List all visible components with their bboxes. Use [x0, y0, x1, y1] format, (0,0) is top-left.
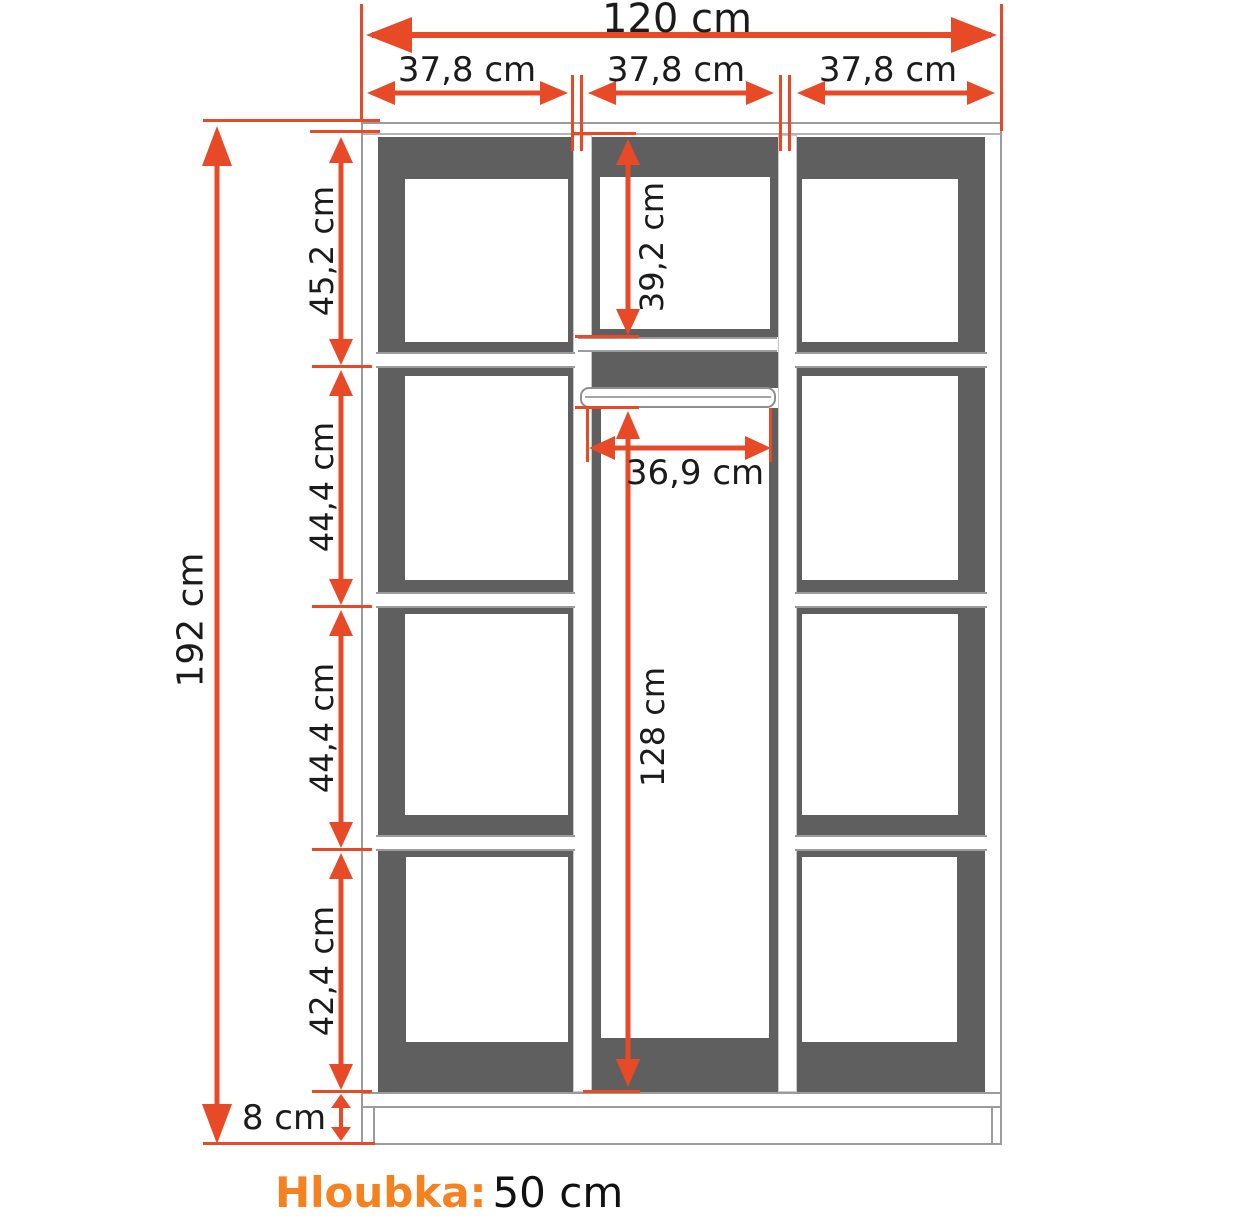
depth-label: Hloubka:: [275, 1168, 486, 1217]
clothes-rail-highlight-line: [585, 396, 771, 398]
right-compartment-2: [797, 368, 985, 592]
dim-label-plinth: 8 cm: [242, 1098, 326, 1138]
left-shelf-3: [376, 835, 575, 851]
right-shelf-1: [795, 352, 987, 368]
right-compartment-4: [797, 851, 985, 1092]
dim-label-section-left: 37,8 cm: [398, 50, 536, 90]
depth-caption: Hloubka: 50 cm: [275, 1168, 623, 1217]
left-shelf-1: [376, 352, 575, 368]
ext-line: [779, 75, 782, 151]
left-compartment-1: [378, 137, 573, 352]
ext-line: [203, 119, 380, 122]
ext-line: [360, 4, 363, 122]
plinth: [373, 1106, 993, 1145]
dim-label-total-height: 192 cm: [171, 552, 212, 687]
right-shelf-2: [795, 592, 987, 608]
ext-line: [575, 406, 639, 409]
cabinet-top-inner-line: [363, 133, 1000, 135]
ext-line: [572, 132, 636, 135]
right-compartment-3: [797, 608, 985, 835]
dim-label-section-middle: 37,8 cm: [607, 50, 745, 90]
ext-line: [580, 75, 583, 151]
dim-label-section-right: 37,8 cm: [819, 50, 957, 90]
divider-right: [778, 135, 797, 1092]
ext-line: [312, 848, 372, 851]
right-shelf-3: [795, 835, 987, 851]
left-compartment-4: [378, 851, 573, 1092]
ext-line: [312, 365, 372, 368]
depth-value: 50 cm: [492, 1168, 623, 1217]
middle-shelf-shadow: [592, 352, 778, 388]
left-compartment-2: [378, 368, 573, 592]
ext-line: [312, 605, 372, 608]
wardrobe-dimension-drawing: 120 cm 37,8 cm 37,8 cm 37,8 cm 192 cm 45…: [0, 0, 1254, 1219]
dim-label-middle-top: 39,2 cm: [633, 182, 671, 312]
left-shelf-2: [376, 592, 575, 608]
middle-shelf: [578, 337, 777, 352]
dim-label-row-4: 42,4 cm: [303, 906, 341, 1036]
ext-line: [575, 335, 639, 338]
dim-label-total-width: 120 cm: [602, 0, 752, 42]
ext-line: [583, 1090, 640, 1093]
dim-label-rail-width: 36,9 cm: [626, 453, 764, 493]
divider-left: [573, 135, 592, 1092]
ext-line: [310, 130, 380, 133]
dim-arrow-plinth: [329, 1094, 353, 1141]
dim-label-row-2: 44,4 cm: [303, 422, 341, 552]
ext-line: [312, 1090, 372, 1093]
dim-label-hanging-height: 128 cm: [634, 667, 672, 787]
dim-label-row-1: 45,2 cm: [303, 186, 341, 316]
dim-label-row-3: 44,4 cm: [303, 663, 341, 793]
ext-line: [571, 75, 574, 151]
ext-line: [1000, 4, 1003, 131]
left-compartment-3: [378, 608, 573, 835]
right-compartment-1: [797, 137, 985, 352]
ext-line: [788, 75, 791, 151]
